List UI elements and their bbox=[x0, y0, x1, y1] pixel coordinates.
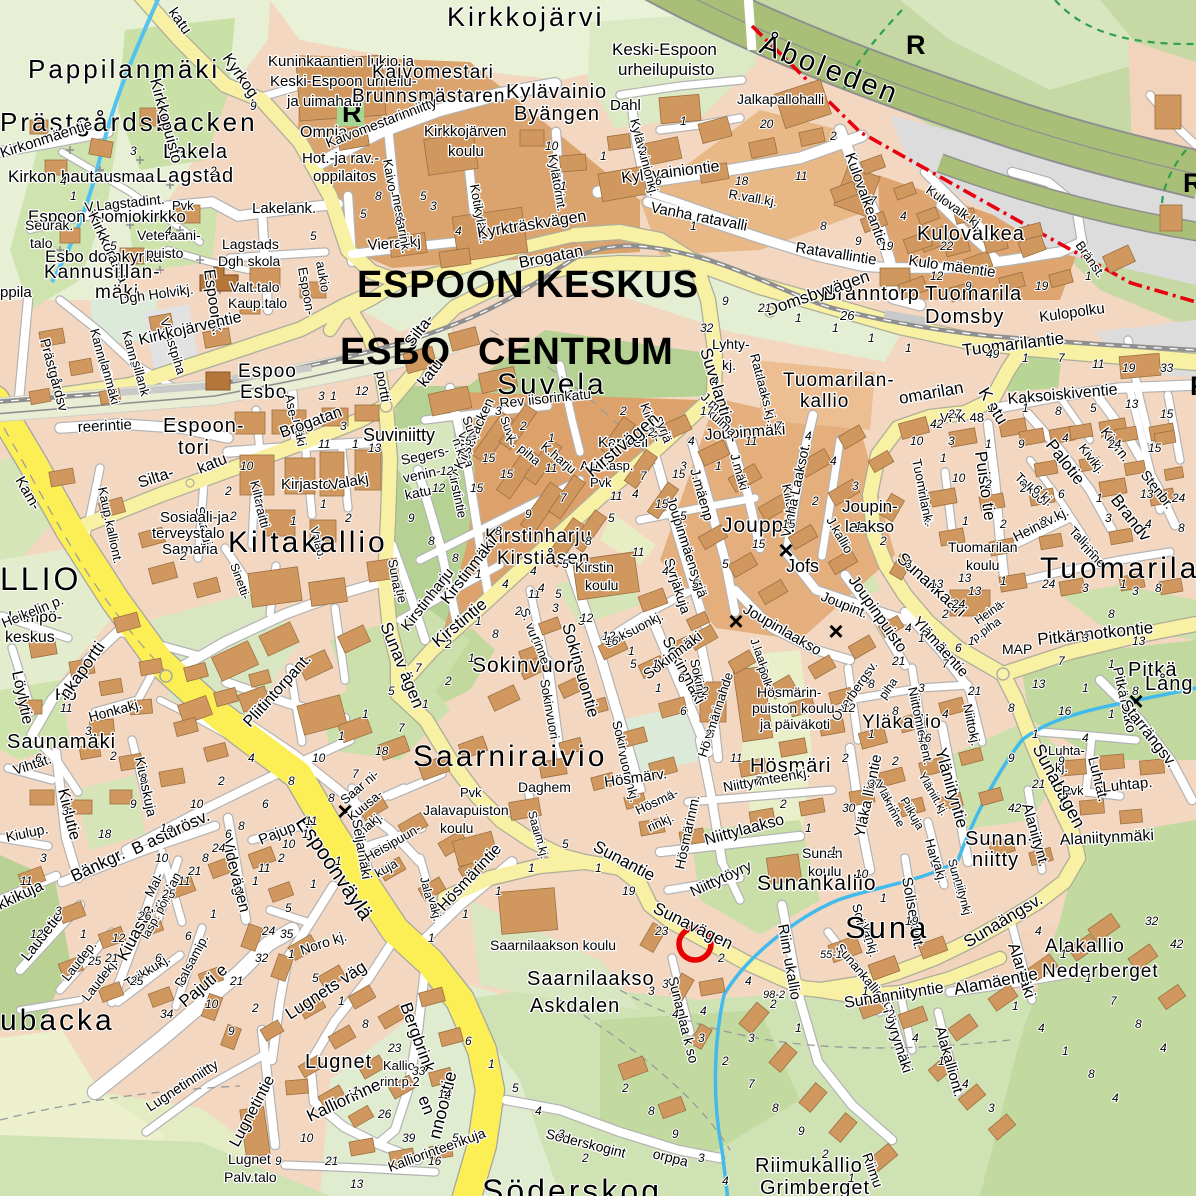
svg-text:24: 24 bbox=[1107, 437, 1122, 451]
svg-text:1: 1 bbox=[985, 437, 992, 451]
svg-text:MAP: MAP bbox=[1002, 641, 1032, 657]
svg-text:1: 1 bbox=[362, 707, 369, 721]
svg-text:4: 4 bbox=[538, 581, 545, 595]
svg-text:1: 1 bbox=[338, 994, 345, 1008]
svg-text:4: 4 bbox=[900, 209, 907, 223]
svg-text:3: 3 bbox=[948, 434, 955, 448]
svg-text:1: 1 bbox=[832, 321, 839, 335]
svg-text:37: 37 bbox=[868, 777, 883, 791]
svg-text:1: 1 bbox=[310, 877, 317, 891]
svg-text:5: 5 bbox=[360, 207, 367, 221]
svg-text:11: 11 bbox=[318, 437, 330, 451]
svg-text:6: 6 bbox=[185, 929, 192, 943]
svg-text:1: 1 bbox=[475, 567, 482, 581]
svg-text:9: 9 bbox=[722, 294, 729, 308]
svg-text:21: 21 bbox=[1031, 777, 1045, 791]
svg-text:2: 2 bbox=[647, 425, 655, 439]
svg-text:5: 5 bbox=[420, 189, 427, 203]
svg-text:1: 1 bbox=[1120, 577, 1127, 591]
svg-text:26: 26 bbox=[137, 909, 152, 923]
svg-text:9: 9 bbox=[1018, 437, 1025, 451]
svg-text:24: 24 bbox=[1041, 577, 1056, 591]
svg-text:3: 3 bbox=[988, 1101, 995, 1115]
svg-text:1: 1 bbox=[302, 827, 309, 841]
svg-text:1: 1 bbox=[805, 821, 812, 835]
svg-text:8: 8 bbox=[495, 524, 502, 538]
svg-text:4: 4 bbox=[1160, 1041, 1167, 1055]
svg-text:19: 19 bbox=[1122, 361, 1136, 375]
svg-text:Samaria: Samaria bbox=[162, 541, 219, 558]
svg-text:1: 1 bbox=[1032, 727, 1039, 741]
svg-text:8: 8 bbox=[1135, 1017, 1142, 1031]
svg-text:1: 1 bbox=[560, 179, 567, 193]
svg-text:8: 8 bbox=[238, 819, 245, 833]
svg-text:Saarnilaakso: Saarnilaakso bbox=[527, 968, 655, 990]
svg-text:33: 33 bbox=[1160, 361, 1174, 375]
svg-text:1: 1 bbox=[715, 459, 722, 473]
svg-text:1: 1 bbox=[690, 219, 697, 233]
svg-text:1: 1 bbox=[422, 697, 429, 711]
svg-text:1: 1 bbox=[290, 514, 297, 528]
svg-text:Tuomarila: Tuomarila bbox=[925, 283, 1022, 305]
svg-text:Alakallio: Alakallio bbox=[1045, 936, 1125, 957]
svg-text:11: 11 bbox=[610, 489, 622, 503]
svg-text:14: 14 bbox=[438, 1087, 452, 1101]
svg-text:8: 8 bbox=[868, 677, 875, 691]
svg-text:25: 25 bbox=[129, 974, 144, 988]
svg-text:8: 8 bbox=[1040, 514, 1047, 528]
svg-text:15: 15 bbox=[672, 467, 686, 481]
svg-text:8: 8 bbox=[1008, 701, 1015, 715]
svg-text:15: 15 bbox=[1148, 441, 1162, 455]
svg-text:6: 6 bbox=[678, 671, 685, 685]
svg-text:4: 4 bbox=[722, 1174, 729, 1188]
svg-text:2: 2 bbox=[721, 1054, 729, 1068]
svg-text:3: 3 bbox=[340, 419, 347, 433]
svg-text:4: 4 bbox=[1038, 1021, 1045, 1035]
svg-text:9: 9 bbox=[855, 234, 862, 248]
svg-text:tie: tie bbox=[393, 588, 410, 604]
svg-text:Kiltakallio: Kiltakallio bbox=[228, 526, 388, 559]
svg-text:Lakelank.: Lakelank. bbox=[252, 200, 316, 217]
svg-text:Lång: Lång bbox=[1145, 673, 1194, 695]
svg-text:8: 8 bbox=[452, 551, 459, 565]
svg-text:Kirkkojärven: Kirkkojärven bbox=[424, 123, 507, 140]
svg-text:2: 2 bbox=[639, 144, 647, 158]
svg-text:32: 32 bbox=[700, 321, 714, 335]
svg-text:1: 1 bbox=[468, 651, 475, 665]
svg-text:15: 15 bbox=[500, 467, 514, 481]
svg-text:22: 22 bbox=[939, 239, 954, 253]
svg-text:2: 2 bbox=[941, 607, 949, 621]
svg-text:1: 1 bbox=[1062, 1044, 1069, 1058]
svg-text:6: 6 bbox=[262, 797, 269, 811]
svg-text:3: 3 bbox=[552, 601, 559, 615]
svg-text:11: 11 bbox=[1092, 357, 1104, 371]
svg-text:1: 1 bbox=[330, 389, 337, 403]
svg-text:Luhta-: Luhta- bbox=[1048, 743, 1085, 758]
svg-text:8: 8 bbox=[288, 774, 295, 788]
svg-text:13: 13 bbox=[1140, 487, 1154, 501]
svg-text:ubacka: ubacka bbox=[0, 1004, 115, 1037]
svg-text:9: 9 bbox=[130, 797, 137, 811]
svg-text:1: 1 bbox=[680, 114, 687, 128]
svg-text:4: 4 bbox=[1062, 431, 1069, 445]
svg-text:Esbo: Esbo bbox=[240, 382, 287, 403]
svg-text:8: 8 bbox=[428, 534, 435, 548]
svg-text:10: 10 bbox=[155, 851, 169, 865]
svg-text:2: 2 bbox=[277, 851, 285, 865]
svg-text:12: 12 bbox=[432, 481, 446, 495]
svg-text:9: 9 bbox=[672, 1127, 679, 1141]
svg-text:11: 11 bbox=[545, 461, 557, 475]
svg-text:8: 8 bbox=[362, 1017, 369, 1031]
svg-text:Pvk: Pvk bbox=[460, 785, 482, 800]
svg-text:12: 12 bbox=[355, 384, 369, 398]
svg-text:1: 1 bbox=[1085, 269, 1092, 283]
svg-text:4: 4 bbox=[1082, 731, 1089, 745]
svg-text:39: 39 bbox=[402, 1131, 416, 1145]
svg-text:1: 1 bbox=[830, 844, 837, 858]
svg-text:1: 1 bbox=[918, 631, 925, 645]
svg-text:21: 21 bbox=[324, 1154, 338, 1168]
svg-text:5: 5 bbox=[608, 511, 615, 525]
svg-text:Saarniraivio: Saarniraivio bbox=[413, 740, 607, 773]
svg-text:R: R bbox=[1190, 371, 1196, 401]
svg-text:5: 5 bbox=[452, 1131, 459, 1145]
svg-text:3: 3 bbox=[495, 404, 502, 418]
svg-text:18: 18 bbox=[735, 174, 749, 188]
svg-text:10: 10 bbox=[190, 797, 204, 811]
svg-text:1: 1 bbox=[548, 431, 555, 445]
svg-text:5: 5 bbox=[465, 434, 472, 448]
svg-text:keskus: keskus bbox=[5, 629, 55, 646]
svg-text:10: 10 bbox=[312, 751, 326, 765]
svg-text:5: 5 bbox=[388, 684, 395, 698]
svg-text:Daghem: Daghem bbox=[518, 779, 571, 795]
svg-text:30: 30 bbox=[842, 801, 856, 815]
svg-text:1: 1 bbox=[1012, 999, 1019, 1013]
svg-text:2: 2 bbox=[444, 674, 452, 688]
svg-text:1: 1 bbox=[940, 451, 947, 465]
svg-text:5: 5 bbox=[562, 557, 569, 571]
svg-text:18: 18 bbox=[375, 744, 389, 758]
svg-text:10: 10 bbox=[205, 997, 219, 1011]
svg-text:3: 3 bbox=[748, 1031, 755, 1045]
svg-text:6: 6 bbox=[155, 951, 162, 965]
svg-text:Sokinvuori: Sokinvuori bbox=[472, 654, 580, 677]
svg-text:24: 24 bbox=[1171, 491, 1186, 505]
svg-text:1: 1 bbox=[1000, 574, 1007, 588]
svg-text:2: 2 bbox=[217, 774, 225, 788]
svg-text:niitty: niitty bbox=[972, 849, 1019, 871]
svg-text:5: 5 bbox=[722, 557, 729, 571]
svg-text:12: 12 bbox=[112, 931, 126, 945]
svg-text:Lagstad: Lagstad bbox=[156, 165, 234, 187]
svg-text:3: 3 bbox=[698, 1151, 705, 1165]
svg-text:2: 2 bbox=[829, 129, 837, 143]
svg-text:5: 5 bbox=[555, 587, 562, 601]
svg-text:5: 5 bbox=[512, 1081, 519, 1095]
svg-text:15: 15 bbox=[655, 497, 669, 511]
svg-text:4: 4 bbox=[165, 224, 172, 238]
svg-text:16: 16 bbox=[918, 731, 932, 745]
svg-text:3: 3 bbox=[1082, 581, 1089, 595]
svg-text:35: 35 bbox=[280, 927, 294, 941]
svg-text:4: 4 bbox=[962, 1077, 969, 1091]
svg-text:8: 8 bbox=[395, 214, 402, 228]
svg-text:42: 42 bbox=[930, 417, 944, 431]
svg-text:6: 6 bbox=[225, 827, 232, 841]
svg-text:6: 6 bbox=[465, 1034, 472, 1048]
svg-text:10: 10 bbox=[300, 1131, 314, 1145]
svg-text:2: 2 bbox=[887, 1007, 895, 1021]
svg-text:Pappilanmäki: Pappilanmäki bbox=[28, 54, 220, 84]
svg-text:1: 1 bbox=[655, 681, 662, 695]
svg-text:4: 4 bbox=[455, 224, 462, 238]
svg-text:Tuomarilan: Tuomarilan bbox=[948, 539, 1018, 555]
svg-text:2: 2 bbox=[344, 511, 352, 525]
svg-text:3: 3 bbox=[62, 804, 69, 818]
svg-text:1: 1 bbox=[320, 497, 327, 511]
svg-text:49: 49 bbox=[986, 347, 1000, 361]
svg-text:Palv.talo: Palv.talo bbox=[224, 1169, 277, 1185]
svg-text:9: 9 bbox=[180, 974, 187, 988]
svg-text:koulu: koulu bbox=[448, 143, 484, 160]
svg-text:Kaivomestari: Kaivomestari bbox=[372, 62, 494, 83]
svg-text:kallio: kallio bbox=[800, 391, 849, 412]
svg-text:11: 11 bbox=[745, 434, 757, 448]
svg-text:1: 1 bbox=[335, 854, 342, 868]
svg-text:1: 1 bbox=[475, 614, 482, 628]
svg-text:2: 2 bbox=[519, 419, 527, 433]
svg-text:10: 10 bbox=[952, 471, 966, 485]
svg-text:1: 1 bbox=[528, 861, 535, 875]
svg-text:11: 11 bbox=[795, 169, 807, 183]
svg-text:Domsby: Domsby bbox=[925, 306, 1004, 328]
svg-text:25: 25 bbox=[87, 954, 102, 968]
svg-text:Jalkapallohalli: Jalkapallohalli bbox=[737, 91, 824, 107]
svg-text:13: 13 bbox=[350, 1177, 364, 1191]
svg-text:1: 1 bbox=[428, 931, 435, 945]
svg-text:3: 3 bbox=[318, 389, 325, 403]
svg-text:9: 9 bbox=[275, 1154, 282, 1168]
svg-text:1: 1 bbox=[868, 727, 875, 741]
svg-text:13: 13 bbox=[930, 577, 944, 591]
svg-text:2: 2 bbox=[109, 749, 117, 763]
svg-text:puiston koulu: puiston koulu bbox=[752, 700, 835, 716]
svg-text:5: 5 bbox=[312, 971, 319, 985]
svg-text:2: 2 bbox=[999, 517, 1007, 531]
svg-text:4: 4 bbox=[1112, 1091, 1119, 1105]
svg-text:13: 13 bbox=[1132, 634, 1146, 648]
svg-text:20: 20 bbox=[759, 117, 774, 131]
svg-text:Söderskog: Söderskog bbox=[482, 1173, 662, 1196]
svg-text:13: 13 bbox=[1125, 397, 1139, 411]
svg-text:15: 15 bbox=[782, 517, 796, 531]
svg-text:2: 2 bbox=[704, 727, 712, 741]
svg-text:9: 9 bbox=[228, 1024, 235, 1038]
svg-text:21: 21 bbox=[891, 654, 905, 668]
svg-text:26: 26 bbox=[377, 1107, 392, 1121]
svg-text:42: 42 bbox=[1170, 937, 1184, 951]
svg-text:5: 5 bbox=[1090, 401, 1097, 415]
svg-text:1: 1 bbox=[855, 519, 862, 533]
svg-text:8: 8 bbox=[820, 219, 827, 233]
svg-text:1: 1 bbox=[1108, 657, 1115, 671]
svg-text:19: 19 bbox=[1035, 279, 1049, 293]
svg-text:3: 3 bbox=[40, 851, 47, 865]
svg-text:Kirkkojärvi: Kirkkojärvi bbox=[447, 2, 605, 32]
svg-text:1: 1 bbox=[70, 189, 77, 203]
svg-text:2: 2 bbox=[769, 997, 777, 1011]
svg-text:1: 1 bbox=[462, 907, 469, 921]
svg-text:15: 15 bbox=[470, 481, 484, 495]
svg-text:1: 1 bbox=[352, 1084, 359, 1098]
svg-text:2: 2 bbox=[779, 797, 787, 811]
svg-text:3: 3 bbox=[130, 144, 137, 158]
svg-text:R: R bbox=[906, 30, 926, 60]
svg-text:Riimukallio: Riimukallio bbox=[755, 1155, 863, 1177]
svg-text:3: 3 bbox=[1105, 511, 1112, 525]
svg-text:3: 3 bbox=[852, 479, 859, 493]
svg-text:6: 6 bbox=[35, 751, 42, 765]
svg-text:8: 8 bbox=[585, 534, 592, 548]
svg-text:21: 21 bbox=[104, 951, 118, 965]
svg-text:5: 5 bbox=[562, 837, 569, 851]
svg-text:Joupin-: Joupin- bbox=[842, 497, 898, 516]
svg-text:24: 24 bbox=[211, 841, 226, 855]
svg-text:oppilaitos: oppilaitos bbox=[313, 168, 376, 185]
svg-text:Seurak.: Seurak. bbox=[25, 217, 73, 233]
svg-text:10: 10 bbox=[545, 139, 559, 153]
svg-text:2: 2 bbox=[821, 1147, 829, 1161]
svg-text:4: 4 bbox=[535, 1104, 542, 1118]
svg-text:4: 4 bbox=[830, 454, 837, 468]
svg-text:kj.: kj. bbox=[722, 357, 736, 373]
svg-text:2: 2 bbox=[224, 484, 232, 498]
svg-text:4: 4 bbox=[1145, 517, 1152, 531]
svg-text:Sunan-: Sunan- bbox=[965, 828, 1036, 850]
svg-text:4: 4 bbox=[942, 707, 949, 721]
svg-text:2: 2 bbox=[811, 494, 819, 508]
svg-text:reerintie: reerintie bbox=[77, 416, 132, 436]
svg-text:4: 4 bbox=[502, 577, 509, 591]
svg-text:Kylävainio: Kylävainio bbox=[506, 81, 607, 103]
svg-text:3: 3 bbox=[430, 199, 437, 213]
svg-text:8: 8 bbox=[892, 704, 899, 718]
svg-text:19: 19 bbox=[622, 884, 636, 898]
svg-text:2: 2 bbox=[984, 477, 992, 491]
svg-text:24: 24 bbox=[951, 597, 966, 611]
svg-text:3: 3 bbox=[918, 681, 925, 695]
svg-text:15: 15 bbox=[1160, 407, 1174, 421]
svg-text:9: 9 bbox=[525, 507, 532, 521]
svg-text:3: 3 bbox=[648, 984, 655, 998]
svg-text:6: 6 bbox=[1058, 487, 1065, 501]
svg-text:Lagstads: Lagstads bbox=[222, 236, 279, 252]
svg-text:1: 1 bbox=[1108, 707, 1115, 721]
svg-text:koulu: koulu bbox=[585, 577, 618, 593]
svg-text:11: 11 bbox=[305, 814, 317, 828]
svg-text:4: 4 bbox=[632, 487, 639, 501]
svg-text:Jalavapuiston: Jalavapuiston bbox=[423, 802, 509, 818]
svg-text:3: 3 bbox=[55, 904, 62, 918]
svg-text:16: 16 bbox=[1058, 704, 1072, 718]
svg-text:3: 3 bbox=[698, 1031, 705, 1045]
svg-text:8: 8 bbox=[140, 771, 147, 785]
svg-text:6: 6 bbox=[655, 174, 662, 188]
svg-text:1: 1 bbox=[252, 874, 259, 888]
svg-text:2: 2 bbox=[229, 509, 237, 523]
svg-text:1: 1 bbox=[1022, 351, 1029, 365]
svg-text:1: 1 bbox=[488, 1057, 495, 1071]
svg-text:4: 4 bbox=[662, 564, 669, 578]
svg-text:1: 1 bbox=[595, 861, 602, 875]
svg-text:8: 8 bbox=[375, 189, 382, 203]
svg-text:Saunamäki: Saunamäki bbox=[7, 731, 116, 753]
svg-text:24: 24 bbox=[261, 924, 276, 938]
svg-text:23: 23 bbox=[654, 924, 669, 938]
svg-text:21: 21 bbox=[229, 974, 243, 988]
svg-text:9: 9 bbox=[408, 511, 415, 525]
svg-text:Nederberget: Nederberget bbox=[1042, 961, 1159, 982]
svg-text:LLIO: LLIO bbox=[0, 561, 81, 597]
svg-text:4: 4 bbox=[60, 174, 67, 188]
svg-text:12: 12 bbox=[440, 464, 454, 478]
svg-text:12: 12 bbox=[930, 269, 944, 283]
svg-text:1: 1 bbox=[652, 657, 659, 671]
svg-text:Pvk: Pvk bbox=[172, 198, 194, 213]
svg-text:1: 1 bbox=[880, 891, 887, 905]
svg-text:2: 2 bbox=[179, 549, 187, 563]
svg-text:VPK 48: VPK 48 bbox=[940, 410, 984, 425]
svg-text:5: 5 bbox=[630, 657, 637, 671]
svg-text:18: 18 bbox=[98, 827, 112, 841]
svg-text:2: 2 bbox=[514, 604, 522, 618]
svg-text:2: 2 bbox=[891, 754, 899, 768]
svg-text:17: 17 bbox=[700, 404, 715, 418]
svg-text:1: 1 bbox=[1096, 491, 1103, 505]
svg-text:42: 42 bbox=[1008, 801, 1022, 815]
svg-text:1: 1 bbox=[628, 644, 635, 658]
svg-text:2: 2 bbox=[234, 884, 242, 898]
svg-text:Keski-Espoon: Keski-Espoon bbox=[612, 40, 717, 59]
svg-text:1: 1 bbox=[868, 331, 875, 345]
svg-text:4: 4 bbox=[805, 429, 812, 443]
svg-text:12: 12 bbox=[30, 927, 44, 941]
svg-text:1: 1 bbox=[938, 1054, 945, 1068]
svg-text:Sosiaali-ja: Sosiaali-ja bbox=[160, 509, 230, 526]
svg-text:Kirstin: Kirstin bbox=[575, 559, 614, 575]
svg-text:2: 2 bbox=[701, 684, 709, 698]
svg-text:Pvk: Pvk bbox=[1062, 783, 1084, 798]
svg-text:15: 15 bbox=[752, 537, 766, 551]
svg-text:11: 11 bbox=[730, 751, 742, 765]
svg-text:1: 1 bbox=[862, 984, 869, 998]
svg-text:8: 8 bbox=[1108, 607, 1115, 621]
svg-text:5: 5 bbox=[310, 229, 317, 243]
svg-text:1: 1 bbox=[600, 149, 607, 163]
svg-text:10: 10 bbox=[855, 867, 869, 881]
svg-text:Lugnet: Lugnet bbox=[228, 1151, 271, 1167]
svg-text:Tuomarilan-: Tuomarilan- bbox=[783, 370, 895, 391]
svg-text:Byängen: Byängen bbox=[514, 103, 600, 125]
svg-text:23: 23 bbox=[387, 1041, 402, 1055]
svg-text:Lyhty-: Lyhty- bbox=[712, 336, 750, 352]
svg-text:11: 11 bbox=[60, 701, 72, 715]
svg-text:terveystalo: terveystalo bbox=[152, 525, 225, 542]
